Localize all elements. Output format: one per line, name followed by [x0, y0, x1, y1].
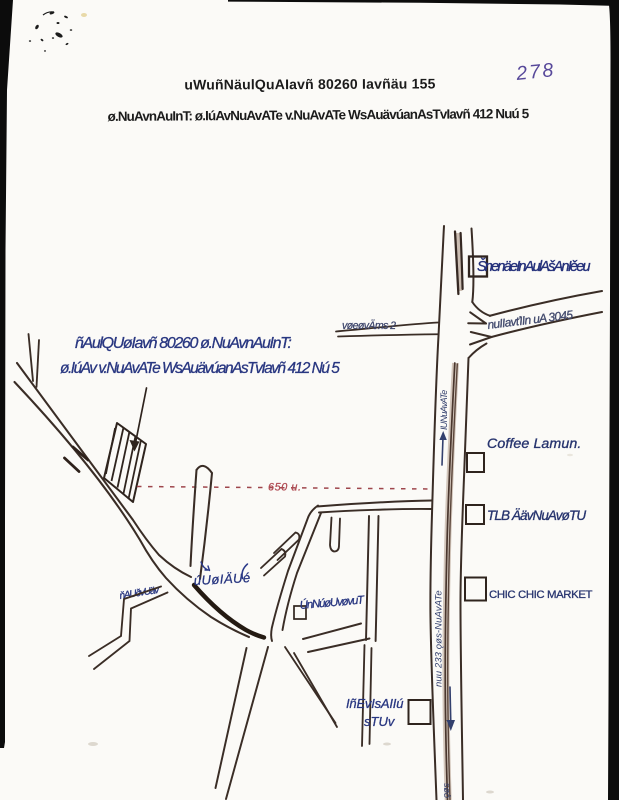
svg-text:TLB ÄävNuAvøTU: TLB ÄävNuAvøTU — [487, 508, 586, 523]
svg-text:sTUv: sTUv — [364, 714, 396, 729]
svg-text:uWuñNäulQuAIavñ 80260 Iavñäu: uWuñNäulQuAIavñ 80260 Iavñäu 155 — [184, 75, 435, 92]
svg-text:ñAulQUøIavñ 80260 ø.NuAvnAuInT: ñAulQUøIavñ 80260 ø.NuAvnAuInT: — [75, 335, 291, 352]
svg-text:ŠnenäeInAulAšAnIěeu: ŠnenäeInAulAšAnIěeu — [477, 258, 590, 275]
svg-text:IñEvIsAIIú: IñEvIsAIIú — [346, 696, 403, 711]
svg-text:278: 278 — [514, 59, 556, 85]
svg-text:nuu 233 ǫøs-NuAvATe: nuu 233 ǫøs-NuAvATe — [434, 590, 445, 687]
svg-text:IUNuAvATe: IUNuAvATe — [439, 390, 449, 430]
svg-text:650 u.: 650 u. — [268, 482, 302, 494]
svg-text:CHIC CHIC MARKET: CHIC CHIC MARKET — [489, 589, 593, 601]
svg-text:ø.IúAv v.NuAvATe WsAuävúanAs: ø.IúAv v.NuAvATe WsAuävúanAsTvIavñ 412 N… — [60, 360, 340, 377]
svg-text:ø.NuAvnAuInT: ø.IúAvNuAvATe: ø.NuAvnAuInT: ø.IúAvNuAvATe v.NuAvATe Ws… — [108, 106, 530, 124]
svg-text:úUøIÄUé: úUøIÄUé — [193, 570, 251, 588]
svg-text:vøeøvÄms 2: vøeøvÄms 2 — [342, 320, 396, 332]
svg-text:Coffee Lamun.: Coffee Lamun. — [487, 436, 581, 452]
svg-text:ǫøs: ǫøs — [441, 782, 451, 798]
